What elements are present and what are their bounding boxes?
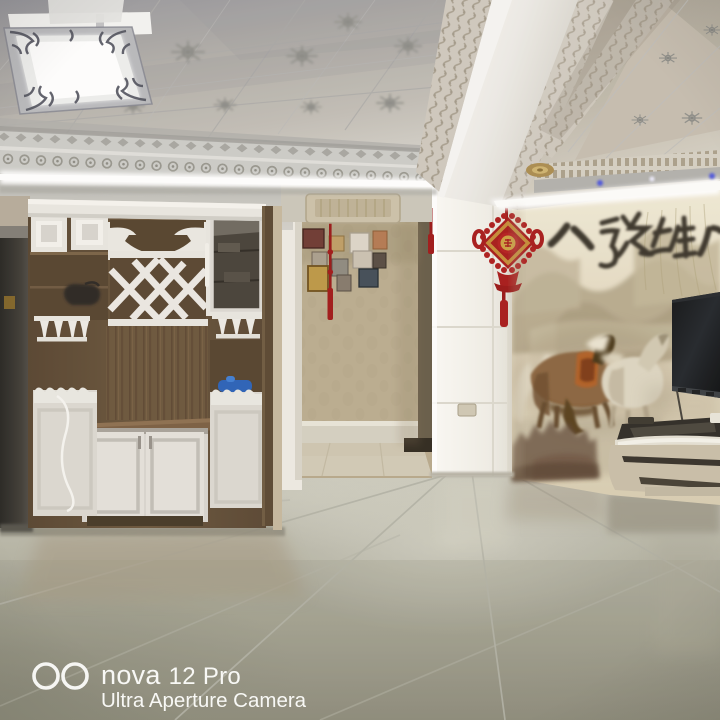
svg-text:nova 12 Pro: nova 12 Pro (101, 660, 241, 690)
svg-text:Ultra Aperture Camera: Ultra Aperture Camera (101, 689, 307, 712)
